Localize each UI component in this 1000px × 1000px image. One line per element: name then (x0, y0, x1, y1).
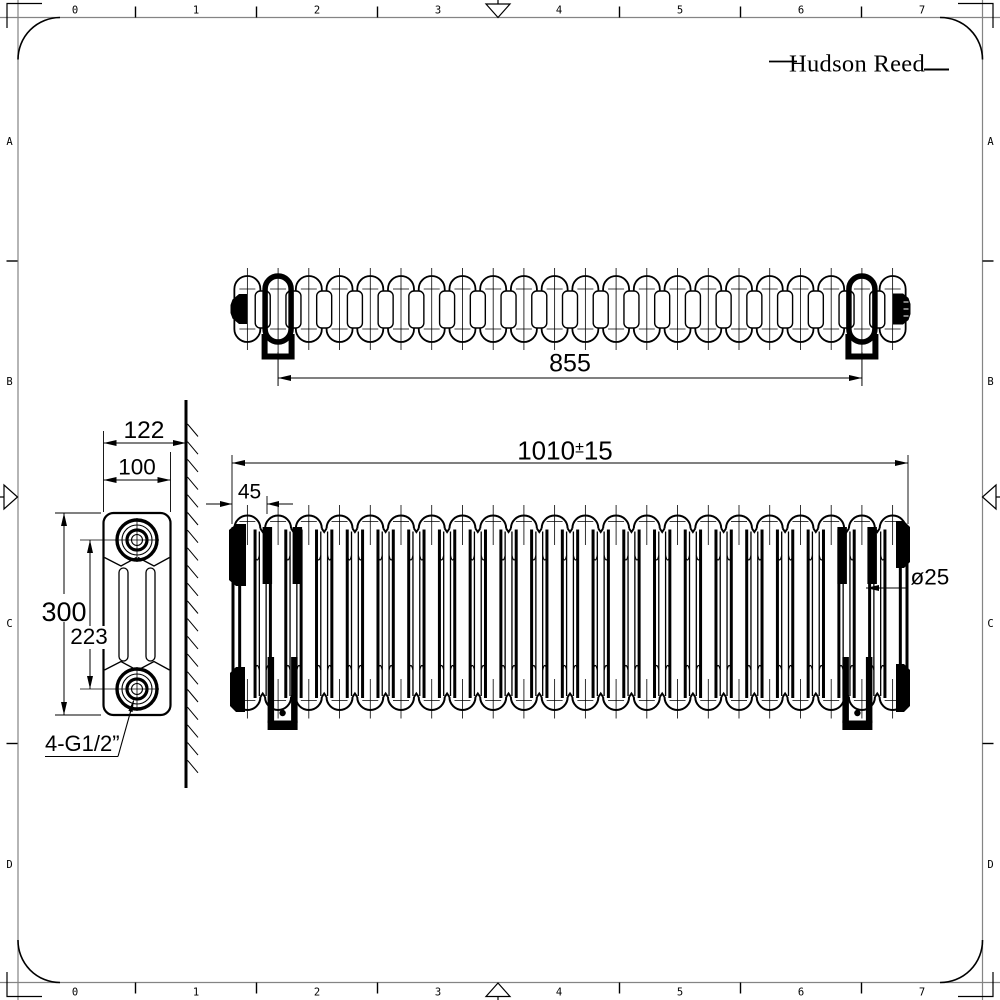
plan-section-hub (747, 291, 762, 328)
bottom-ruler-label: 5 (677, 987, 683, 999)
wall-hatch-mark (188, 583, 199, 596)
front-dome-valley (445, 529, 450, 533)
logo-text: Hudson Reed (789, 51, 925, 78)
front-bottom-valley (322, 694, 327, 698)
front-column-shoulder-arcs (316, 556, 331, 561)
front-column-shoulder-arcs (378, 556, 393, 561)
wall-hatch-mark (188, 424, 199, 437)
plan-section-hub (378, 291, 393, 328)
front-bottom-valley (414, 694, 419, 698)
front-column-shoulder-arcs (747, 556, 762, 561)
bottom-ruler-label: 6 (798, 987, 804, 999)
front-bottom-left-plug (230, 667, 245, 712)
bottom-ruler-label: 3 (435, 987, 441, 999)
dim-100: 100 (104, 452, 171, 512)
front-column-shoulder-arcs (562, 556, 577, 561)
bottom-ruler-label: 1 (193, 987, 199, 999)
front-column-shoulder-arcs (593, 556, 608, 561)
front-column-shoulder-arcs (347, 556, 362, 561)
plan-section-hub (563, 291, 578, 328)
label-connections: 4-G1/2” (45, 699, 134, 757)
plan-section-hub (470, 291, 485, 328)
front-bracket-strip (293, 527, 303, 584)
left-ruler-label: A (6, 136, 13, 148)
front-dome-valley (660, 529, 665, 533)
front-bottom-valley (506, 694, 511, 698)
left-ruler-label: D (6, 859, 12, 871)
front-view (234, 505, 905, 730)
front-bottom-right-plug (896, 664, 910, 712)
hudson-reed-logo: Hudson Reed (769, 51, 949, 78)
sheet-frame (0, 0, 1000, 1000)
bottom-ruler-label: 4 (556, 987, 562, 999)
front-bracket-foot-bar (842, 721, 872, 731)
plan-section-hub (593, 291, 608, 328)
front-column-foot-arcs (685, 666, 700, 671)
wall-hatch-mark (188, 690, 199, 703)
wall-hatch-mark (188, 654, 199, 667)
front-bottom-valley (660, 694, 665, 698)
front-column-shoulder-arcs (532, 556, 547, 561)
front-column-shoulder-arcs (470, 556, 485, 561)
dim-300-arrow-bottom (61, 702, 67, 715)
top-ruler-label: 3 (435, 5, 441, 17)
wall-hatch-mark (188, 477, 199, 490)
front-dome-valley (414, 529, 419, 533)
front-bottom-valley (783, 694, 788, 698)
front-bottom-valley (691, 694, 696, 698)
dim-1010-tol-value: 15 (584, 436, 613, 466)
dim-45-arrow-left (220, 501, 232, 507)
dim-1010-label: 1010±15 (517, 436, 613, 466)
wall-hatching (188, 424, 199, 773)
front-column-foot-arcs (470, 666, 485, 671)
front-bracket-foot-strip (842, 657, 849, 723)
dim-100-arrow-right (158, 477, 171, 483)
front-bracket-strip (867, 527, 877, 584)
plan-section-hub (808, 291, 823, 328)
top-ruler-label: 7 (919, 5, 925, 17)
front-column-shoulder-arcs (808, 556, 823, 561)
front-dome-valley (475, 529, 480, 533)
wall-hatch-mark (188, 459, 199, 472)
dim-1010-tol-sign: ± (575, 440, 584, 457)
front-bottom-valley (537, 694, 542, 698)
front-bracket-strip (837, 527, 847, 584)
top-ruler-label: 4 (556, 5, 562, 17)
bottom-tapping (80, 667, 159, 711)
sheet-rulers: 0123456701234567ABCDABCD (6, 5, 994, 999)
front-column-shoulder-arcs (685, 556, 700, 561)
front-bracket-screw (279, 710, 285, 716)
right-ruler-label: D (987, 859, 993, 871)
dim-223-label: 223 (70, 624, 108, 649)
wall-hatch-mark (188, 725, 199, 738)
left-ruler-label: C (6, 618, 12, 630)
front-dome-valley (353, 529, 358, 533)
front-column-foot-arcs (316, 666, 331, 671)
wall-hatch-mark (188, 743, 199, 756)
left-ruler-label: B (6, 376, 12, 388)
front-column-foot-arcs (347, 666, 362, 671)
front-dome-valley (568, 529, 573, 533)
front-bottom-valley (721, 694, 726, 698)
front-bracket-foot-bar (268, 721, 298, 731)
top-ruler-label: 2 (314, 5, 320, 17)
wall-hatch-mark (188, 513, 199, 526)
front-column-foot-arcs (562, 666, 577, 671)
dim-1010: 1010±15 (232, 436, 908, 525)
front-dome-valley (691, 529, 696, 533)
front-top-right-plug (896, 521, 910, 568)
wall-hatch-mark (188, 442, 199, 455)
plan-section-hub (347, 291, 362, 328)
wall-hatch-mark (188, 495, 199, 508)
front-column-foot-arcs (532, 666, 547, 671)
plan-section-hub (501, 291, 516, 328)
front-column-foot-arcs (654, 666, 669, 671)
plan-section-hub (440, 291, 455, 328)
dim-300: 300 (41, 513, 101, 715)
front-column-foot-arcs (716, 666, 731, 671)
front-dome-valley (721, 529, 726, 533)
front-column-shoulder-arcs (501, 556, 516, 561)
centering-mark-top (486, 0, 510, 18)
centering-mark-bottom (486, 983, 510, 1000)
dim-855-arrow-right (849, 375, 862, 381)
dim-45: 45 (206, 481, 293, 515)
front-column-foot-arcs (808, 666, 823, 671)
front-bottom-valley (875, 694, 880, 698)
front-column-foot-arcs (501, 666, 516, 671)
bottom-ruler-label: 2 (314, 987, 320, 999)
dia25-arrow (866, 585, 879, 591)
connections-label: 4-G1/2” (45, 731, 120, 756)
front-column-foot-arcs (439, 666, 454, 671)
top-ruler-label: 1 (193, 5, 199, 17)
front-top-left-plug (229, 524, 246, 586)
dim-855-label: 855 (549, 350, 591, 378)
radiator-technical-drawing-sheet: 0123456701234567ABCDABCD Hudson Reed 855 (0, 0, 1000, 1000)
wall-hatch-mark (188, 636, 199, 649)
front-bottom-valley (629, 694, 634, 698)
front-bottom-valley (445, 694, 450, 698)
plan-section-hub (778, 291, 793, 328)
wall-hatch-mark (188, 601, 199, 614)
dim-855: 855 (278, 350, 862, 387)
wall-hatch-mark (188, 619, 199, 632)
front-column-foot-arcs (593, 666, 608, 671)
dia25-label: ø25 (911, 565, 950, 590)
corner-trim-marks (7, 4, 993, 997)
front-bracket-foot-strip (291, 657, 298, 723)
front-bottom-valley (598, 694, 603, 698)
plan-left-end-plug (231, 294, 248, 324)
front-bracket-foot-strip (866, 657, 873, 723)
front-dome-valley (813, 529, 818, 533)
plan-section-hub (317, 291, 332, 328)
dim-300-arrow-top (61, 513, 67, 526)
front-column-foot-arcs (378, 666, 393, 671)
wall-hatch-mark (188, 530, 199, 543)
dim-122-arrow-right (173, 440, 186, 446)
top-ruler-label: 6 (798, 5, 804, 17)
plan-section-hub (532, 291, 547, 328)
dim-45-arrow-right (267, 501, 279, 507)
front-bottom-valley (813, 694, 818, 698)
top-ruler-label: 5 (677, 5, 683, 17)
front-column-shoulder-arcs (409, 556, 424, 561)
dim-122-arrow-left (104, 440, 117, 446)
front-column-shoulder-arcs (439, 556, 454, 561)
plan-section-hub (409, 291, 424, 328)
front-bracket-screw (854, 710, 860, 716)
front-dome-valley (783, 529, 788, 533)
plan-section-hub (685, 291, 700, 328)
front-bracket-foot-strip (268, 657, 275, 723)
front-column-shoulder-arcs (777, 556, 792, 561)
dim-223-arrow-bottom (87, 676, 93, 689)
front-bracket-strip (263, 527, 273, 584)
front-bottom-valley (260, 694, 265, 698)
dim-122-label: 122 (124, 417, 165, 444)
dim-1010-arrow-right (895, 460, 908, 466)
dim-100-label: 100 (118, 455, 156, 480)
front-column-foot-arcs (777, 666, 792, 671)
plan-section-hub (716, 291, 731, 328)
right-ruler-label: A (987, 136, 994, 148)
dim-45-label: 45 (238, 481, 261, 504)
dim-300-label: 300 (41, 597, 86, 627)
wall-hatch-mark (188, 566, 199, 579)
front-dome-valley (322, 529, 327, 533)
front-column-foot-arcs (409, 666, 424, 671)
plan-section-hub (655, 291, 670, 328)
front-bottom-valley (383, 694, 388, 698)
frame-rounded-corners (18, 17, 983, 982)
centering-mark-left (0, 485, 18, 509)
plan-section-hub (624, 291, 639, 328)
right-ruler-label: B (987, 376, 993, 388)
bottom-ruler-label: 0 (72, 987, 78, 999)
front-column-shoulder-arcs (654, 556, 669, 561)
front-dome-valley (506, 529, 511, 533)
front-dome-valley (537, 529, 542, 533)
right-ruler-label: C (987, 618, 993, 630)
dim-223-arrow-top (87, 540, 93, 553)
front-dome-valley (752, 529, 757, 533)
front-dome-valley (383, 529, 388, 533)
front-column-foot-arcs (747, 666, 762, 671)
bottom-ruler-label: 7 (919, 987, 925, 999)
top-tapping (80, 518, 159, 562)
wall-hatch-mark (188, 548, 199, 561)
dim-1010-arrow-left (232, 460, 245, 466)
side-column-slot-left (119, 568, 128, 661)
front-column-shoulder-arcs (716, 556, 731, 561)
wall-hatch-mark (188, 707, 199, 720)
wall-hatch-mark (188, 672, 199, 685)
front-column-foot-arcs (624, 666, 639, 671)
front-column-shoulder-arcs (624, 556, 639, 561)
front-bottom-valley (353, 694, 358, 698)
dim-855-arrow-left (278, 375, 291, 381)
front-dome-valley (598, 529, 603, 533)
front-bottom-valley (568, 694, 573, 698)
front-dome-valley (629, 529, 634, 533)
centering-mark-right (983, 485, 1000, 509)
front-bottom-valley (475, 694, 480, 698)
side-column-slot-right (146, 568, 155, 661)
front-bottom-valley (752, 694, 757, 698)
top-ruler-label: 0 (72, 5, 78, 17)
dim-100-arrow-left (104, 477, 117, 483)
wall-hatch-mark (188, 760, 199, 773)
dim-1010-value: 1010 (517, 436, 575, 466)
